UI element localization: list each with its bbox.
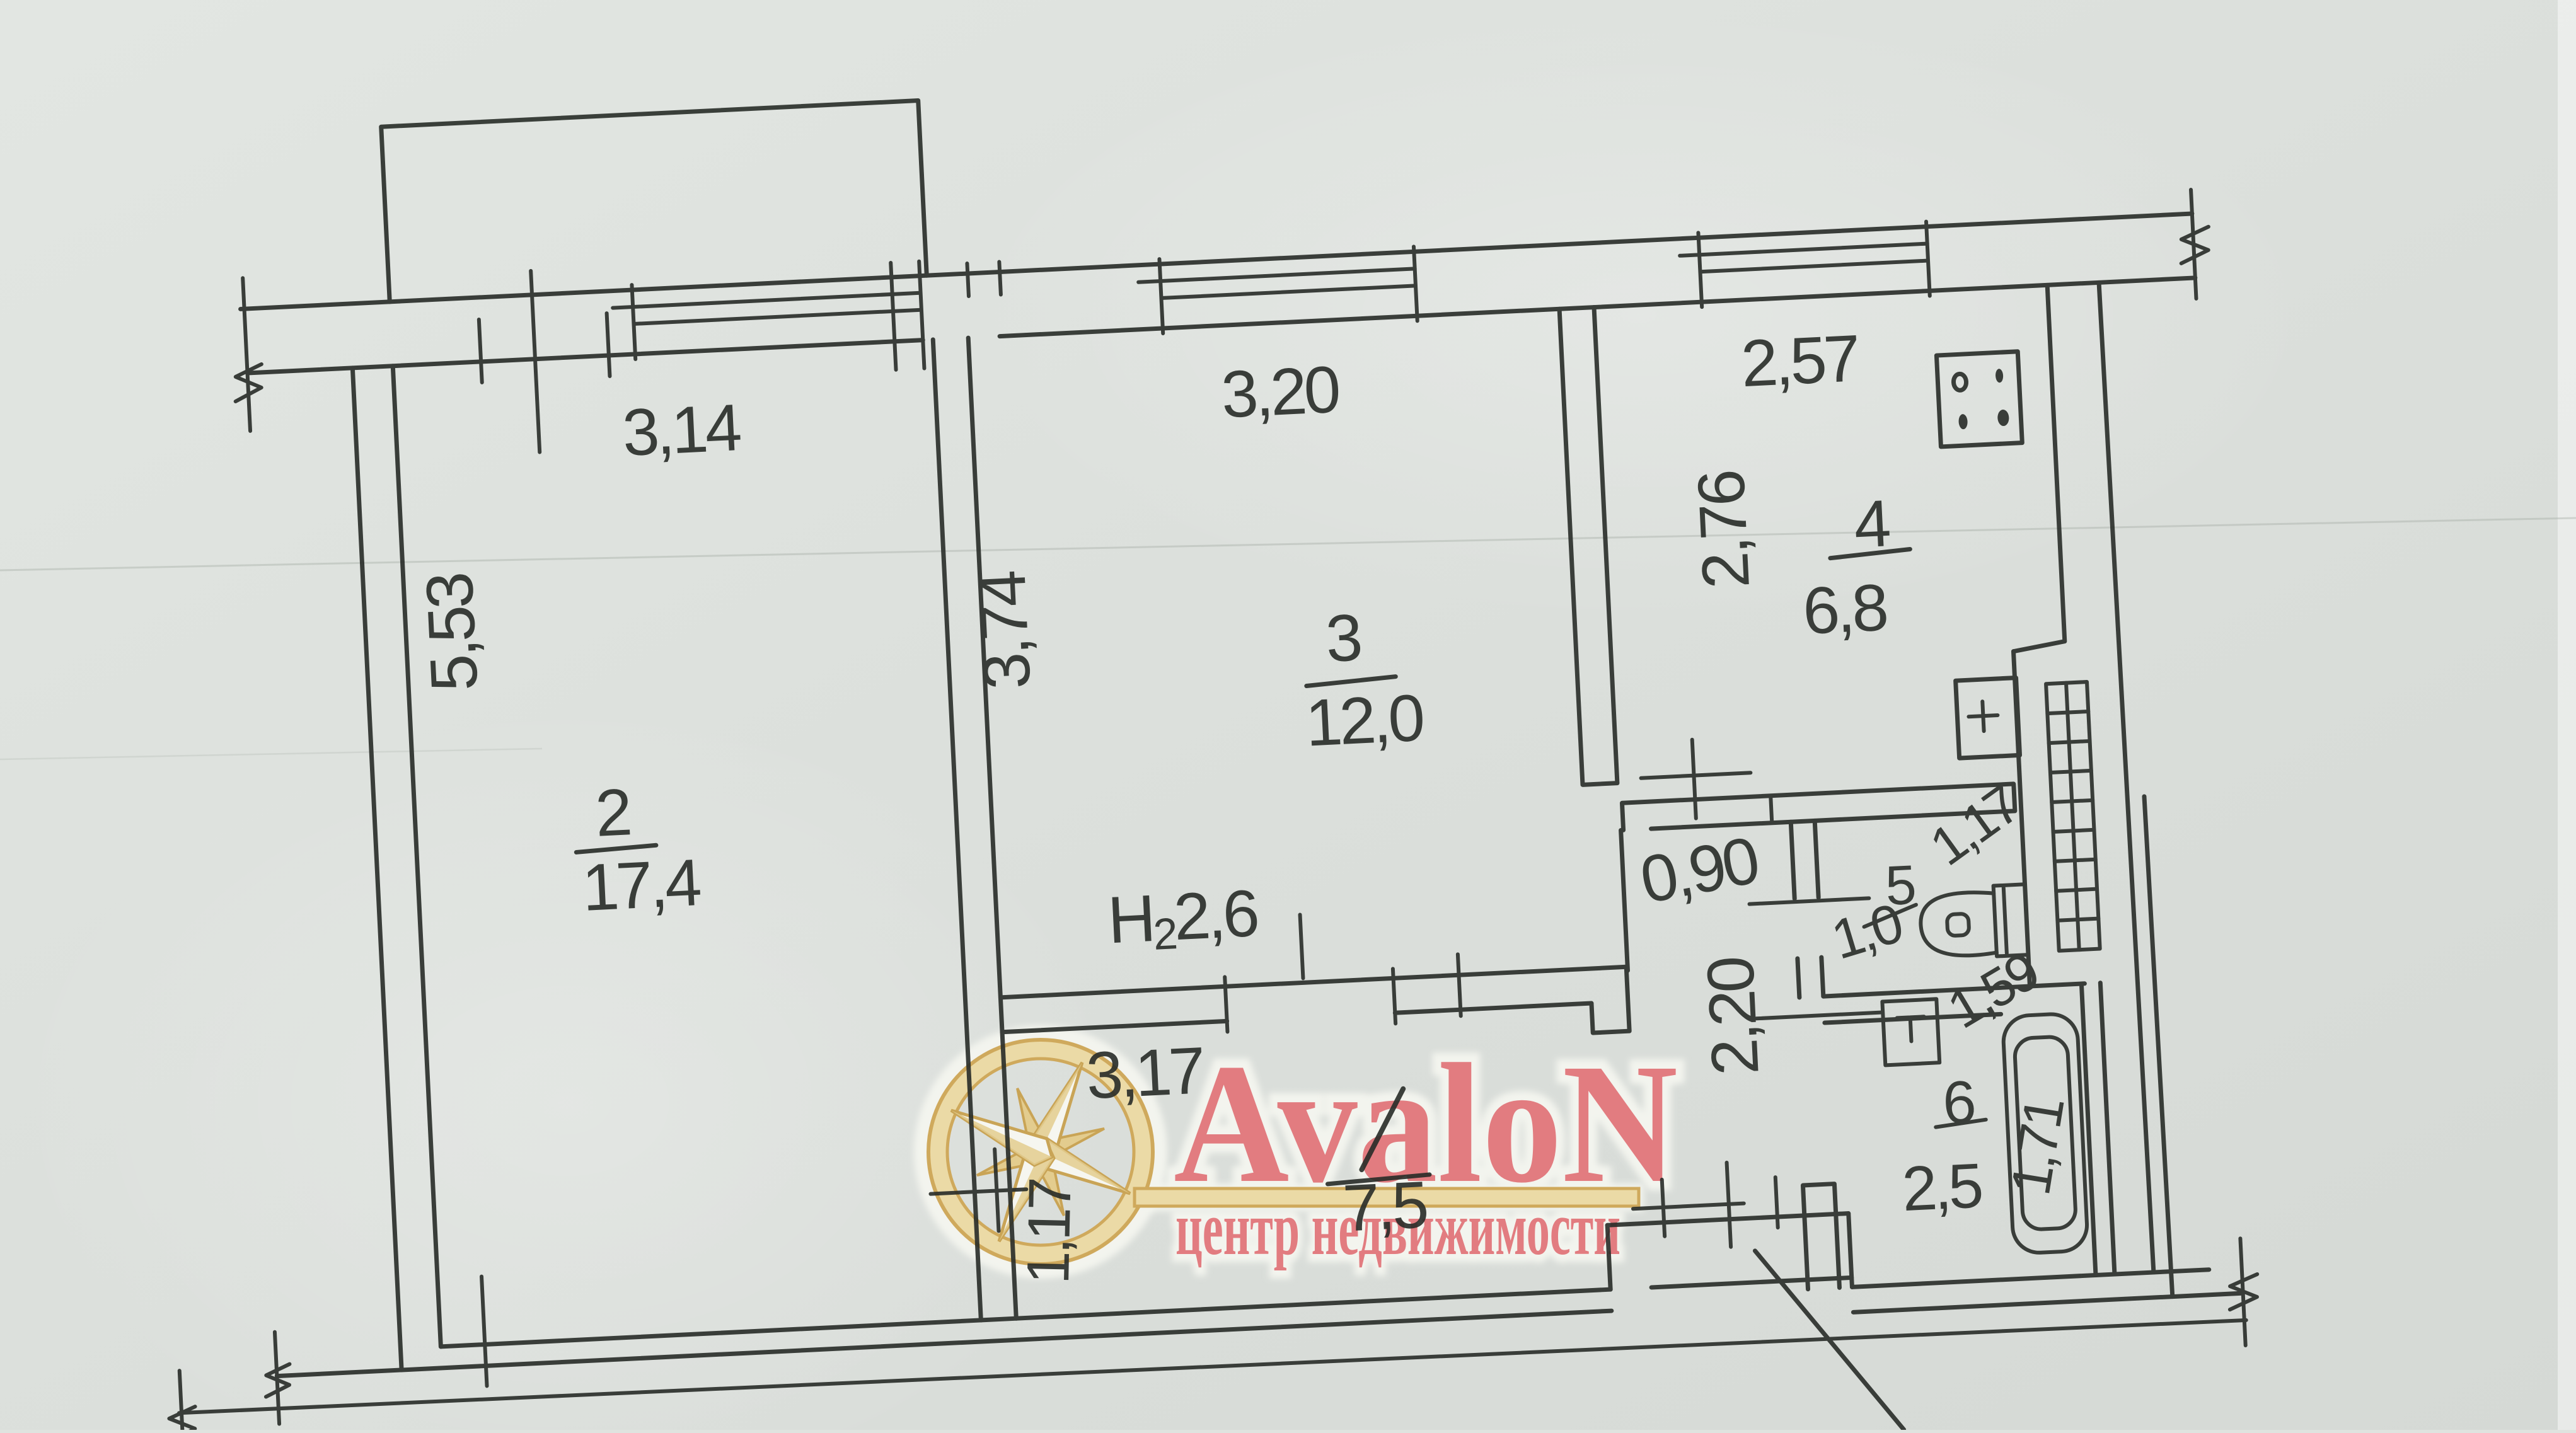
svg-text:2: 2	[594, 775, 632, 850]
svg-text:3: 3	[1324, 601, 1362, 676]
svg-text:6,8: 6,8	[1801, 571, 1888, 648]
svg-text:3,74: 3,74	[965, 570, 1044, 691]
svg-text:H22,6: H22,6	[1106, 877, 1259, 961]
svg-text:7,5: 7,5	[1341, 1168, 1428, 1245]
svg-text:2,20: 2,20	[1694, 957, 1773, 1077]
svg-text:12,0: 12,0	[1304, 681, 1424, 761]
svg-text:2,57: 2,57	[1740, 321, 1859, 401]
svg-text:2,76: 2,76	[1684, 470, 1764, 590]
svg-text:3,14: 3,14	[621, 391, 742, 470]
svg-text:3,20: 3,20	[1220, 353, 1340, 432]
svg-text:3,17: 3,17	[1085, 1033, 1204, 1113]
svg-text:5,53: 5,53	[413, 573, 492, 693]
svg-text:17,4: 17,4	[580, 846, 702, 925]
svg-text:2,5: 2,5	[1900, 1150, 1983, 1224]
svg-text:1,17: 1,17	[1015, 1179, 1083, 1285]
